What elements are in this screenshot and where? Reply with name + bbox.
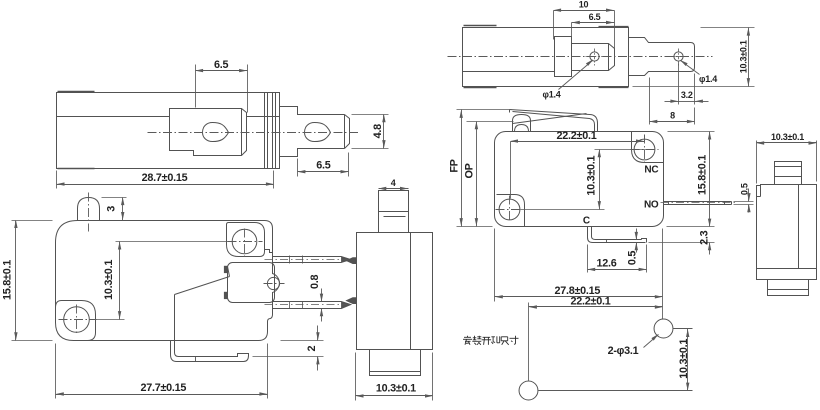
svg-text:10.3±0.1: 10.3±0.1 [103, 260, 115, 300]
svg-text:3.2: 3.2 [681, 90, 693, 100]
svg-text:3: 3 [106, 206, 118, 212]
svg-text:8: 8 [670, 111, 675, 121]
svg-text:2.3: 2.3 [699, 230, 711, 245]
svg-text:28.7±0.15: 28.7±0.15 [142, 172, 188, 184]
svg-text:2: 2 [306, 345, 318, 351]
svg-text:10.3±0.1: 10.3±0.1 [586, 155, 598, 195]
svg-text:22.2±0.1: 22.2±0.1 [557, 130, 597, 142]
svg-text:27.7±0.15: 27.7±0.15 [140, 382, 186, 394]
svg-text:10.3±0.1: 10.3±0.1 [376, 383, 416, 395]
svg-text:FP: FP [449, 159, 461, 172]
svg-text:2-φ3.1: 2-φ3.1 [608, 345, 639, 357]
svg-text:12.6: 12.6 [596, 258, 616, 270]
svg-text:15.8±0.1: 15.8±0.1 [697, 155, 709, 195]
svg-text:NO: NO [644, 199, 659, 210]
svg-text:4: 4 [391, 178, 396, 188]
svg-text:4.8: 4.8 [372, 124, 384, 139]
svg-text:OP: OP [464, 163, 476, 178]
svg-text:0.5: 0.5 [739, 183, 749, 195]
svg-text:φ1.4: φ1.4 [699, 74, 717, 84]
svg-text:10.3±0.1: 10.3±0.1 [678, 339, 690, 379]
svg-text:15.8±0.1: 15.8±0.1 [1, 260, 13, 300]
svg-text:6.5: 6.5 [589, 12, 601, 22]
svg-text:0.5: 0.5 [627, 251, 639, 266]
svg-text:10.3±0.1: 10.3±0.1 [739, 40, 749, 73]
svg-text:6.5: 6.5 [214, 59, 229, 71]
svg-text:10: 10 [579, 0, 589, 10]
svg-text:10.3±0.1: 10.3±0.1 [771, 132, 804, 142]
svg-text:0.8: 0.8 [309, 275, 321, 290]
svg-text:φ1.4: φ1.4 [543, 90, 561, 100]
svg-text:6.5: 6.5 [316, 159, 331, 171]
svg-text:C: C [583, 216, 590, 227]
svg-text:22.2±0.1: 22.2±0.1 [571, 295, 611, 307]
svg-text:NC: NC [644, 165, 658, 176]
